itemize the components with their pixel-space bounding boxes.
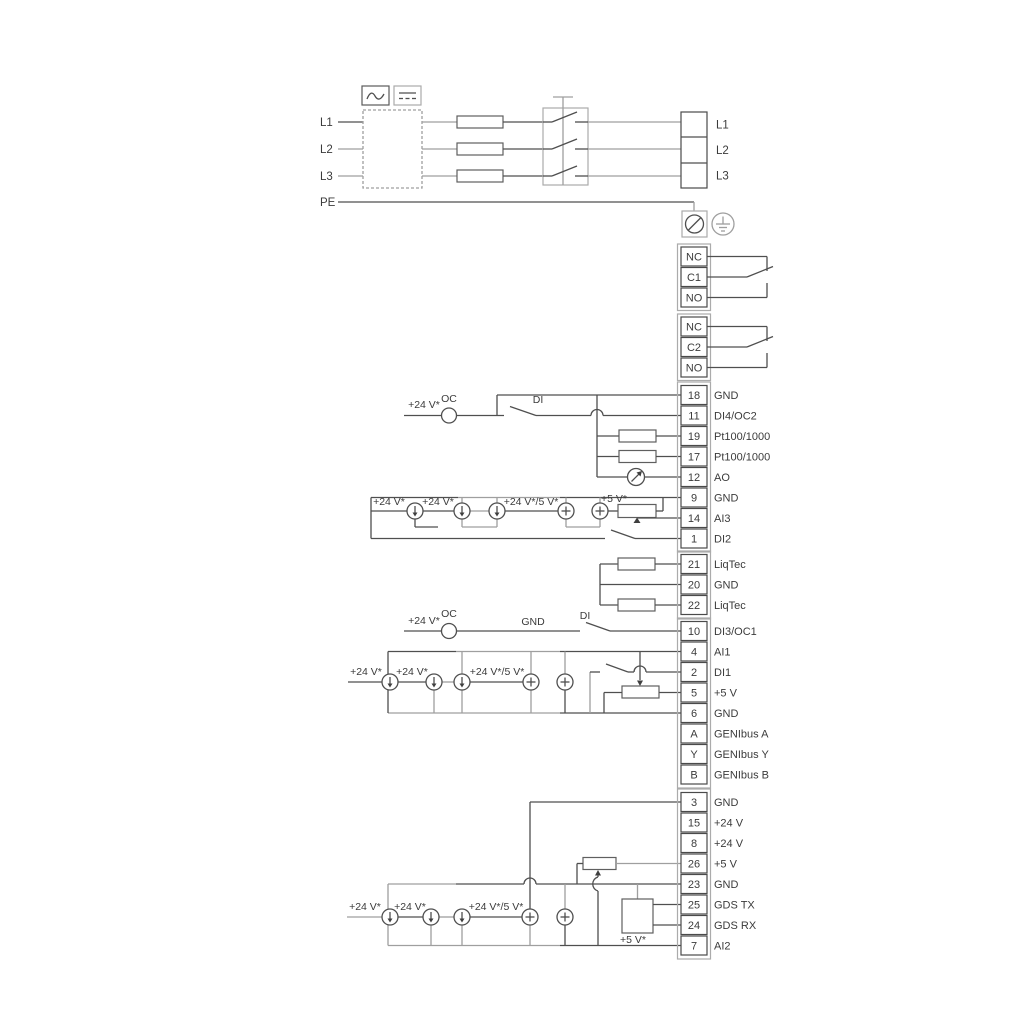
di3-gnd-label: GND [521,616,545,628]
terminal-label: GND [714,390,739,402]
terminal-label: DI4/OC2 [714,411,757,423]
terminal-label: Pt100/1000 [714,452,770,464]
terminal-number: 2 [691,667,697,679]
switch-blade-l3 [552,166,577,176]
switch-blade-l2 [552,139,577,149]
terminal-number: Y [690,749,698,761]
terminal-label: AI3 [714,513,731,525]
terminal-number: 20 [688,580,700,592]
terminal-label: +24 V [714,838,744,850]
terminal-label: GND [714,493,739,505]
liqtec-sensor-1 [618,558,655,570]
ai3-potentiometer [618,505,656,518]
terminal-number: 12 [688,472,700,484]
ai3-24v5v-label: +24 V*/5 V* [504,496,559,508]
relay-1: NC C1 NO [678,244,774,311]
terminal-label: +5 V [714,688,738,700]
terminal-number: 5 [691,688,697,700]
terminal-label: GENIbus Y [714,749,769,761]
terminal-label: GND [714,708,739,720]
power-section: L1 L2 L3 PE [320,86,734,237]
fuse-l2 [457,143,503,155]
main-switch [543,97,588,185]
terminal-number: 19 [688,431,700,443]
terminal-label: LiqTec [714,559,746,571]
relay-2: NC C2 NO [678,314,774,381]
ai3-sensor-group: +24 V* +24 V* +24 V*/5 V* +5 V* [371,493,681,539]
liqtec-sensor-2 [618,599,655,611]
output-label-l3: L3 [716,171,729,183]
terminal-label: GDS RX [714,920,757,932]
terminal-number: 26 [688,859,700,871]
ai3-5v-label: +5 V* [601,493,627,505]
input-label-pe: PE [320,197,336,209]
ai2-24v5v-label: +24 V*/5 V* [469,901,524,913]
terminal-number: A [690,729,698,741]
relay1-c1: C1 [687,272,701,284]
filter-box [363,110,422,188]
input-label-l2: L2 [320,144,333,156]
di3-switch-blade [586,623,610,632]
terminal-number: 6 [691,708,697,720]
input-label-l1: L1 [320,117,333,129]
terminal-number: 9 [691,493,697,505]
terminal-label: AI1 [714,647,731,659]
switch-blade-l1 [552,112,577,122]
di3-oc-label: OC [441,608,457,620]
di4-24v-label: +24 V* [408,399,440,411]
terminal-number: 25 [688,900,700,912]
earth-ground-icon [712,213,734,235]
terminal-number: 18 [688,390,700,402]
terminal-number: 23 [688,879,700,891]
relay1-contact-blade [747,267,773,278]
terminal-label: AO [714,472,730,484]
terminal-group-liqtec: 21 LiqTec 20 GND 22 LiqTec [678,551,747,619]
terminal-label: DI3/OC1 [714,626,757,638]
diagram-canvas: L1 L2 L3 PE [0,0,1024,1024]
relay2-no: NO [686,363,703,375]
terminal-number: 21 [688,559,700,571]
ai1-sensor-group: +24 V* OC GND DI +24 V* +24 V* +24 V*/5 … [348,608,681,713]
ai2-potentiometer [583,858,616,870]
terminal-label: GENIbus A [714,729,769,741]
terminal-label: GDS TX [714,900,755,912]
ai2-24v-label-1: +24 V* [349,901,381,913]
di3-24v-label: +24 V* [408,615,440,627]
terminal-number: 15 [688,818,700,830]
ai1-potentiometer [622,686,659,698]
ai2-5v-label: +5 V* [620,934,646,946]
terminal-label: GENIbus B [714,770,769,782]
relay2-nc: NC [686,322,702,334]
liqtec-wiring [600,558,681,611]
terminal-number: 7 [691,941,697,953]
terminal-label: LiqTec [714,600,746,612]
terminal-group-pio: 3 GND 15 +24 V 8 +24 V 26 +5 V 23 GND 25… [678,789,757,959]
pt100-resistor-2 [619,451,656,463]
terminal-number: 17 [688,452,700,464]
input-label-l3: L3 [320,171,333,183]
terminal-number: 3 [691,797,697,809]
terminal-number: 1 [691,534,697,546]
terminal-group-io1: 10 DI3/OC1 4 AI1 2 DI1 5 +5 V 6 GND A GE… [678,618,770,788]
terminal-label: +5 V [714,859,738,871]
pt100-resistor-1 [619,430,656,442]
di3-di-label: DI [580,610,591,622]
wiring-diagram: L1 L2 L3 PE [0,0,1024,1024]
ac-waveform-icon [362,86,389,105]
di4-switch-blade [510,407,536,416]
terminal-label: Pt100/1000 [714,431,770,443]
output-label-l2: L2 [716,145,729,157]
gds-sensor-box [622,899,653,933]
terminal-number: 11 [688,411,699,423]
terminal-number: 14 [688,513,700,525]
terminal-number: 24 [688,920,700,932]
terminal-number: 10 [688,626,700,638]
ai3-24v-label-2: +24 V* [422,496,454,508]
ai1-24v-label-2: +24 V* [396,666,428,678]
di4-oc-label: OC [441,393,457,405]
di1-switch-blade [606,664,628,672]
terminal-label: GND [714,580,739,592]
terminal-label: AI2 [714,941,731,953]
terminal-group-io2: 18 GND 11 DI4/OC2 19 Pt100/1000 17 Pt100… [678,382,771,552]
ai3-24v-label-1: +24 V* [373,496,405,508]
relay2-c2: C2 [687,342,701,354]
open-collector-icon-2 [442,624,457,639]
fuse-l1 [457,116,503,128]
fuse-l3 [457,170,503,182]
relay2-contact-blade [747,337,773,348]
terminal-label: GND [714,879,739,891]
terminal-label: DI1 [714,667,731,679]
terminal-number: B [690,770,697,782]
di2-switch-blade [611,530,635,539]
ai2-24v-label-2: +24 V* [394,901,426,913]
open-collector-icon [442,408,457,423]
relay1-no: NO [686,293,703,305]
relay1-nc: NC [686,252,702,264]
terminal-number: 22 [688,600,700,612]
pe-terminal-icon [682,211,707,237]
terminal-number: 8 [691,838,697,850]
terminal-label: DI2 [714,534,731,546]
ai1-24v-label-1: +24 V* [350,666,382,678]
terminal-label: GND [714,797,739,809]
mains-terminal-block [681,112,707,188]
ai2-sensor-group: +24 V* +24 V* +24 V*/5 V* +5 V* [347,802,681,946]
dc-lines-icon [394,86,421,105]
ai1-24v5v-label: +24 V*/5 V* [470,666,525,678]
terminal-label: +24 V [714,818,744,830]
terminal-number: 4 [691,647,697,659]
io2-wiring: +24 V* OC DI [404,393,681,486]
output-label-l1: L1 [716,120,729,132]
di4-di-label: DI [533,394,544,406]
